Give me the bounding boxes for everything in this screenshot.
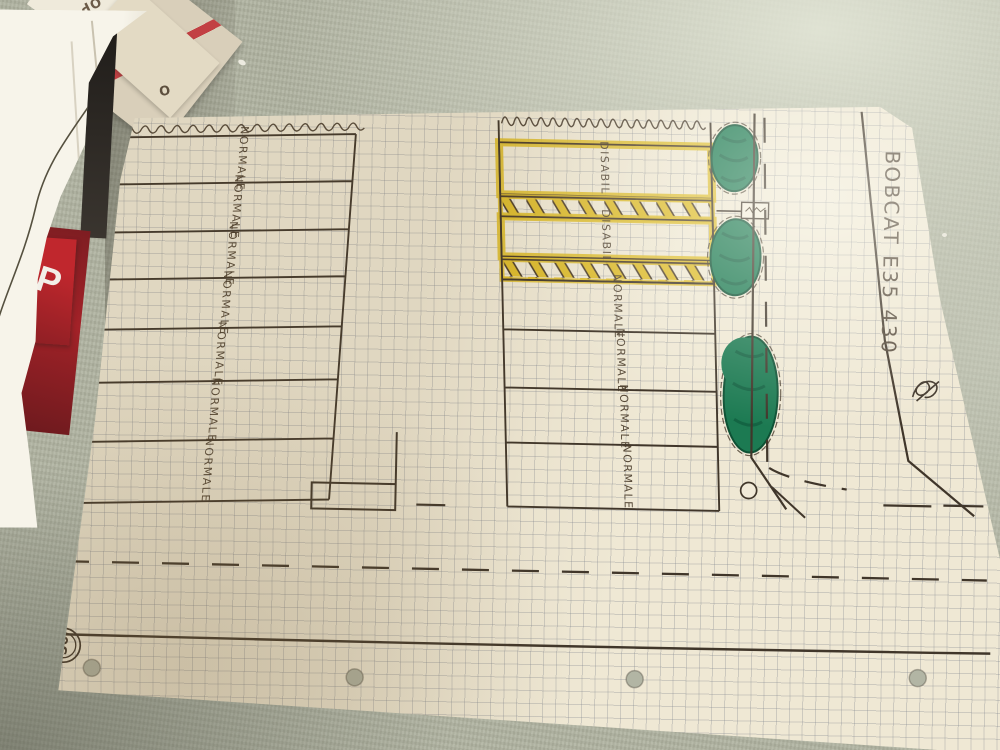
horizontal-road-center-dashes [62, 561, 987, 580]
speed-limit-value: 50 [54, 634, 72, 655]
horizontal-road-bottom-line [53, 634, 990, 655]
o-fragment: O [158, 81, 171, 98]
disabled-stall-label: DISABILI [597, 141, 611, 200]
ramp-rectangle [311, 430, 397, 510]
punch-hole [909, 669, 926, 686]
middle-parking-block: DISABILI DISABILI NORMALE NORMALE NORMA [498, 117, 719, 512]
stall-label: NORMALE [198, 438, 216, 503]
disabled-parking-sign [716, 202, 768, 219]
photo-of-parking-sketch: OP O P [0, 0, 1000, 750]
center-line-curve-dashes [769, 468, 847, 490]
punch-hole [626, 671, 643, 688]
punch-hole [346, 669, 363, 686]
graph-paper-sheet: NORMALE NORMALE NORMALE NORMALE NORMALE … [38, 93, 1000, 750]
road-boundary-dashes [416, 495, 983, 517]
stall-label: NORMALE [205, 377, 223, 442]
pen-scribble [913, 381, 939, 402]
stall-label: NORMALE [620, 444, 634, 509]
vertical-road-right-line [853, 112, 982, 516]
speed-limit-50-sign: 50 [46, 628, 81, 663]
stall-label: NORMALE [617, 384, 631, 449]
corner-flare-line [771, 487, 806, 518]
punch-holes [83, 652, 926, 698]
roads [53, 95, 1000, 655]
graph-paper-grid: NORMALE NORMALE NORMALE NORMALE NORMALE … [21, 68, 1000, 750]
paper-speck [942, 233, 947, 237]
punch-hole [83, 659, 100, 676]
post-circle [740, 482, 756, 498]
parking-sketch: NORMALE NORMALE NORMALE NORMALE NORMALE … [21, 68, 1000, 750]
machine-note: BOBCAT E35 430 [877, 150, 905, 355]
zigzag-top-line [501, 117, 705, 130]
sign-post [717, 211, 742, 212]
